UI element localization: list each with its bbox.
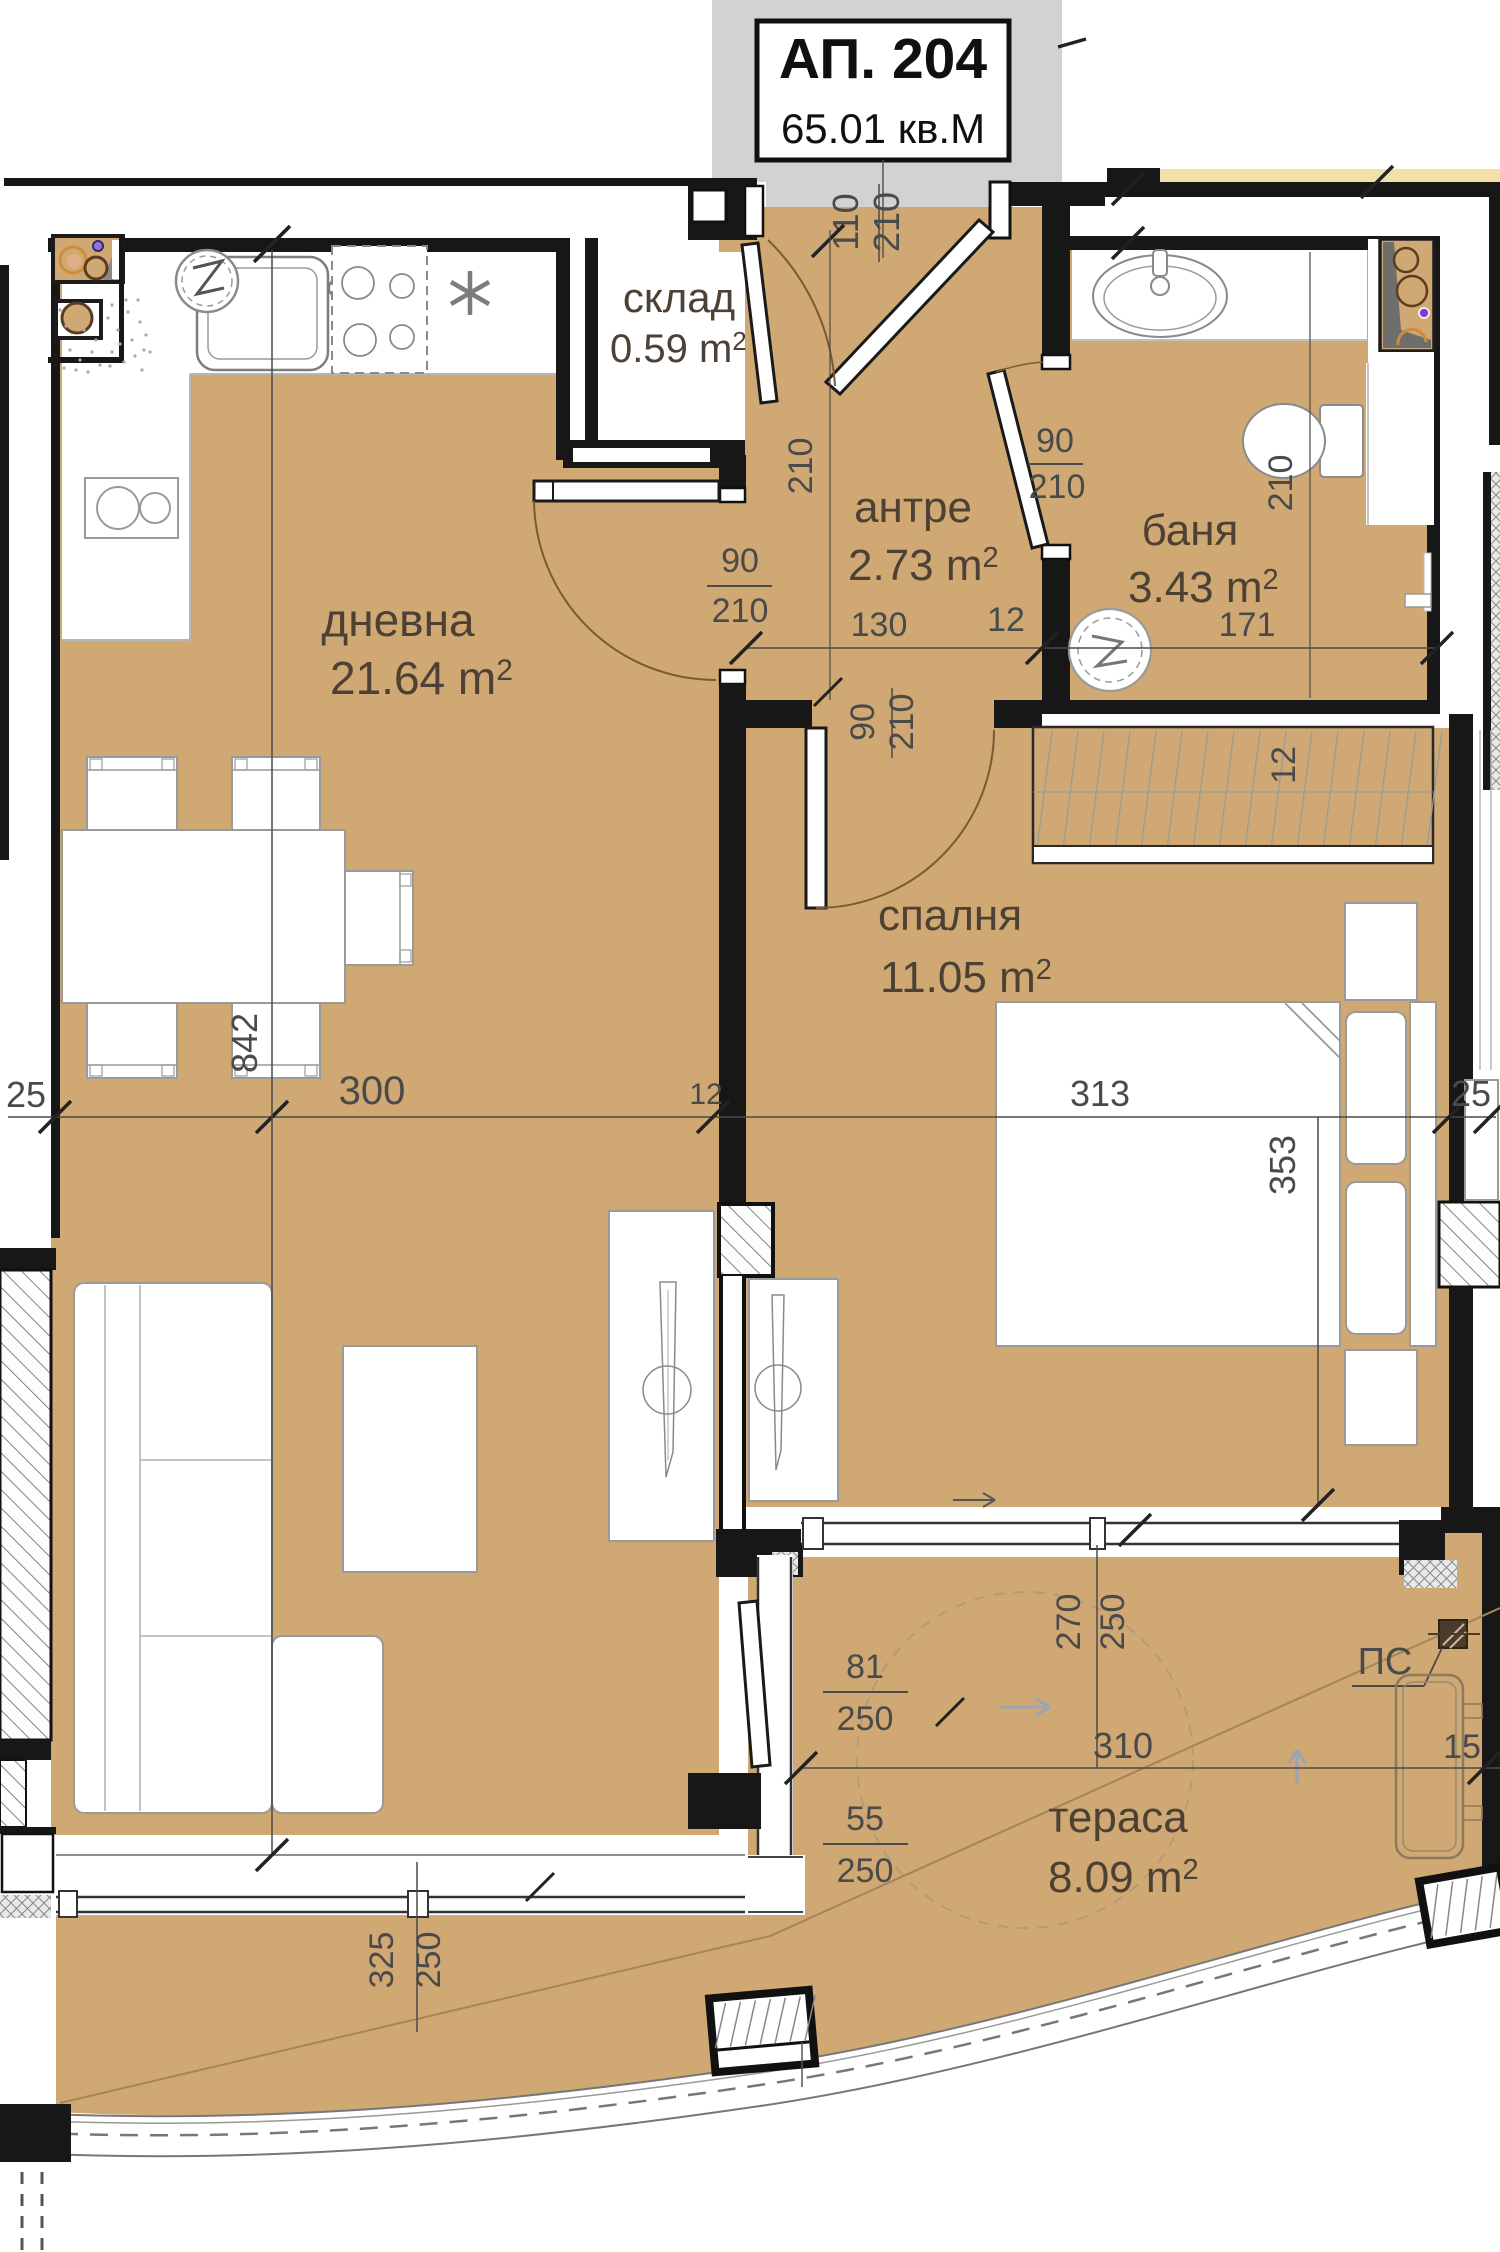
svg-text:250: 250 — [837, 1700, 894, 1738]
svg-text:12: 12 — [689, 1078, 722, 1111]
svg-text:210: 210 — [782, 438, 820, 495]
svg-text:842: 842 — [224, 1013, 265, 1073]
svg-text:55: 55 — [846, 1800, 884, 1838]
svg-text:270: 270 — [1050, 1594, 1088, 1651]
svg-text:АП. 204: АП. 204 — [779, 27, 987, 91]
svg-text:210: 210 — [712, 592, 769, 630]
svg-text:210: 210 — [883, 694, 921, 751]
svg-text:дневна: дневна — [321, 594, 475, 646]
svg-text:25: 25 — [1451, 1073, 1491, 1114]
svg-text:8.09 m2: 8.09 m2 — [1048, 1853, 1199, 1902]
svg-text:250: 250 — [837, 1852, 894, 1890]
svg-text:210: 210 — [1262, 455, 1300, 512]
svg-text:тераса: тераса — [1048, 1793, 1188, 1842]
svg-text:110: 110 — [825, 193, 866, 250]
svg-text:90: 90 — [844, 703, 882, 741]
svg-text:313: 313 — [1070, 1073, 1130, 1114]
svg-text:баня: баня — [1142, 506, 1239, 555]
svg-text:130: 130 — [851, 606, 908, 644]
svg-text:антре: антре — [854, 483, 972, 532]
svg-text:250: 250 — [410, 1932, 448, 1989]
svg-text:81: 81 — [846, 1648, 884, 1686]
svg-text:3.43 m2: 3.43 m2 — [1128, 563, 1279, 612]
svg-text:21.64 m2: 21.64 m2 — [330, 652, 513, 704]
svg-text:300: 300 — [339, 1069, 406, 1113]
svg-text:353: 353 — [1262, 1135, 1303, 1195]
svg-text:250: 250 — [1094, 1594, 1132, 1651]
svg-text:310: 310 — [1093, 1725, 1153, 1766]
svg-text:90: 90 — [1036, 422, 1074, 460]
svg-text:11.05 m2: 11.05 m2 — [880, 953, 1052, 1002]
svg-text:2.73 m2: 2.73 m2 — [848, 541, 999, 590]
svg-text:склад: склад — [623, 274, 735, 321]
svg-text:12: 12 — [1265, 746, 1303, 784]
svg-text:65.01 кв.М: 65.01 кв.М — [781, 105, 985, 152]
svg-text:15: 15 — [1443, 1728, 1481, 1766]
svg-text:25: 25 — [6, 1074, 46, 1115]
svg-text:90: 90 — [721, 542, 759, 580]
svg-text:210: 210 — [866, 192, 907, 252]
svg-text:210: 210 — [1029, 468, 1086, 506]
svg-text:0.59 m2: 0.59 m2 — [610, 326, 747, 371]
svg-text:325: 325 — [363, 1932, 401, 1989]
svg-text:спалня: спалня — [878, 891, 1022, 940]
svg-text:12: 12 — [987, 601, 1025, 639]
